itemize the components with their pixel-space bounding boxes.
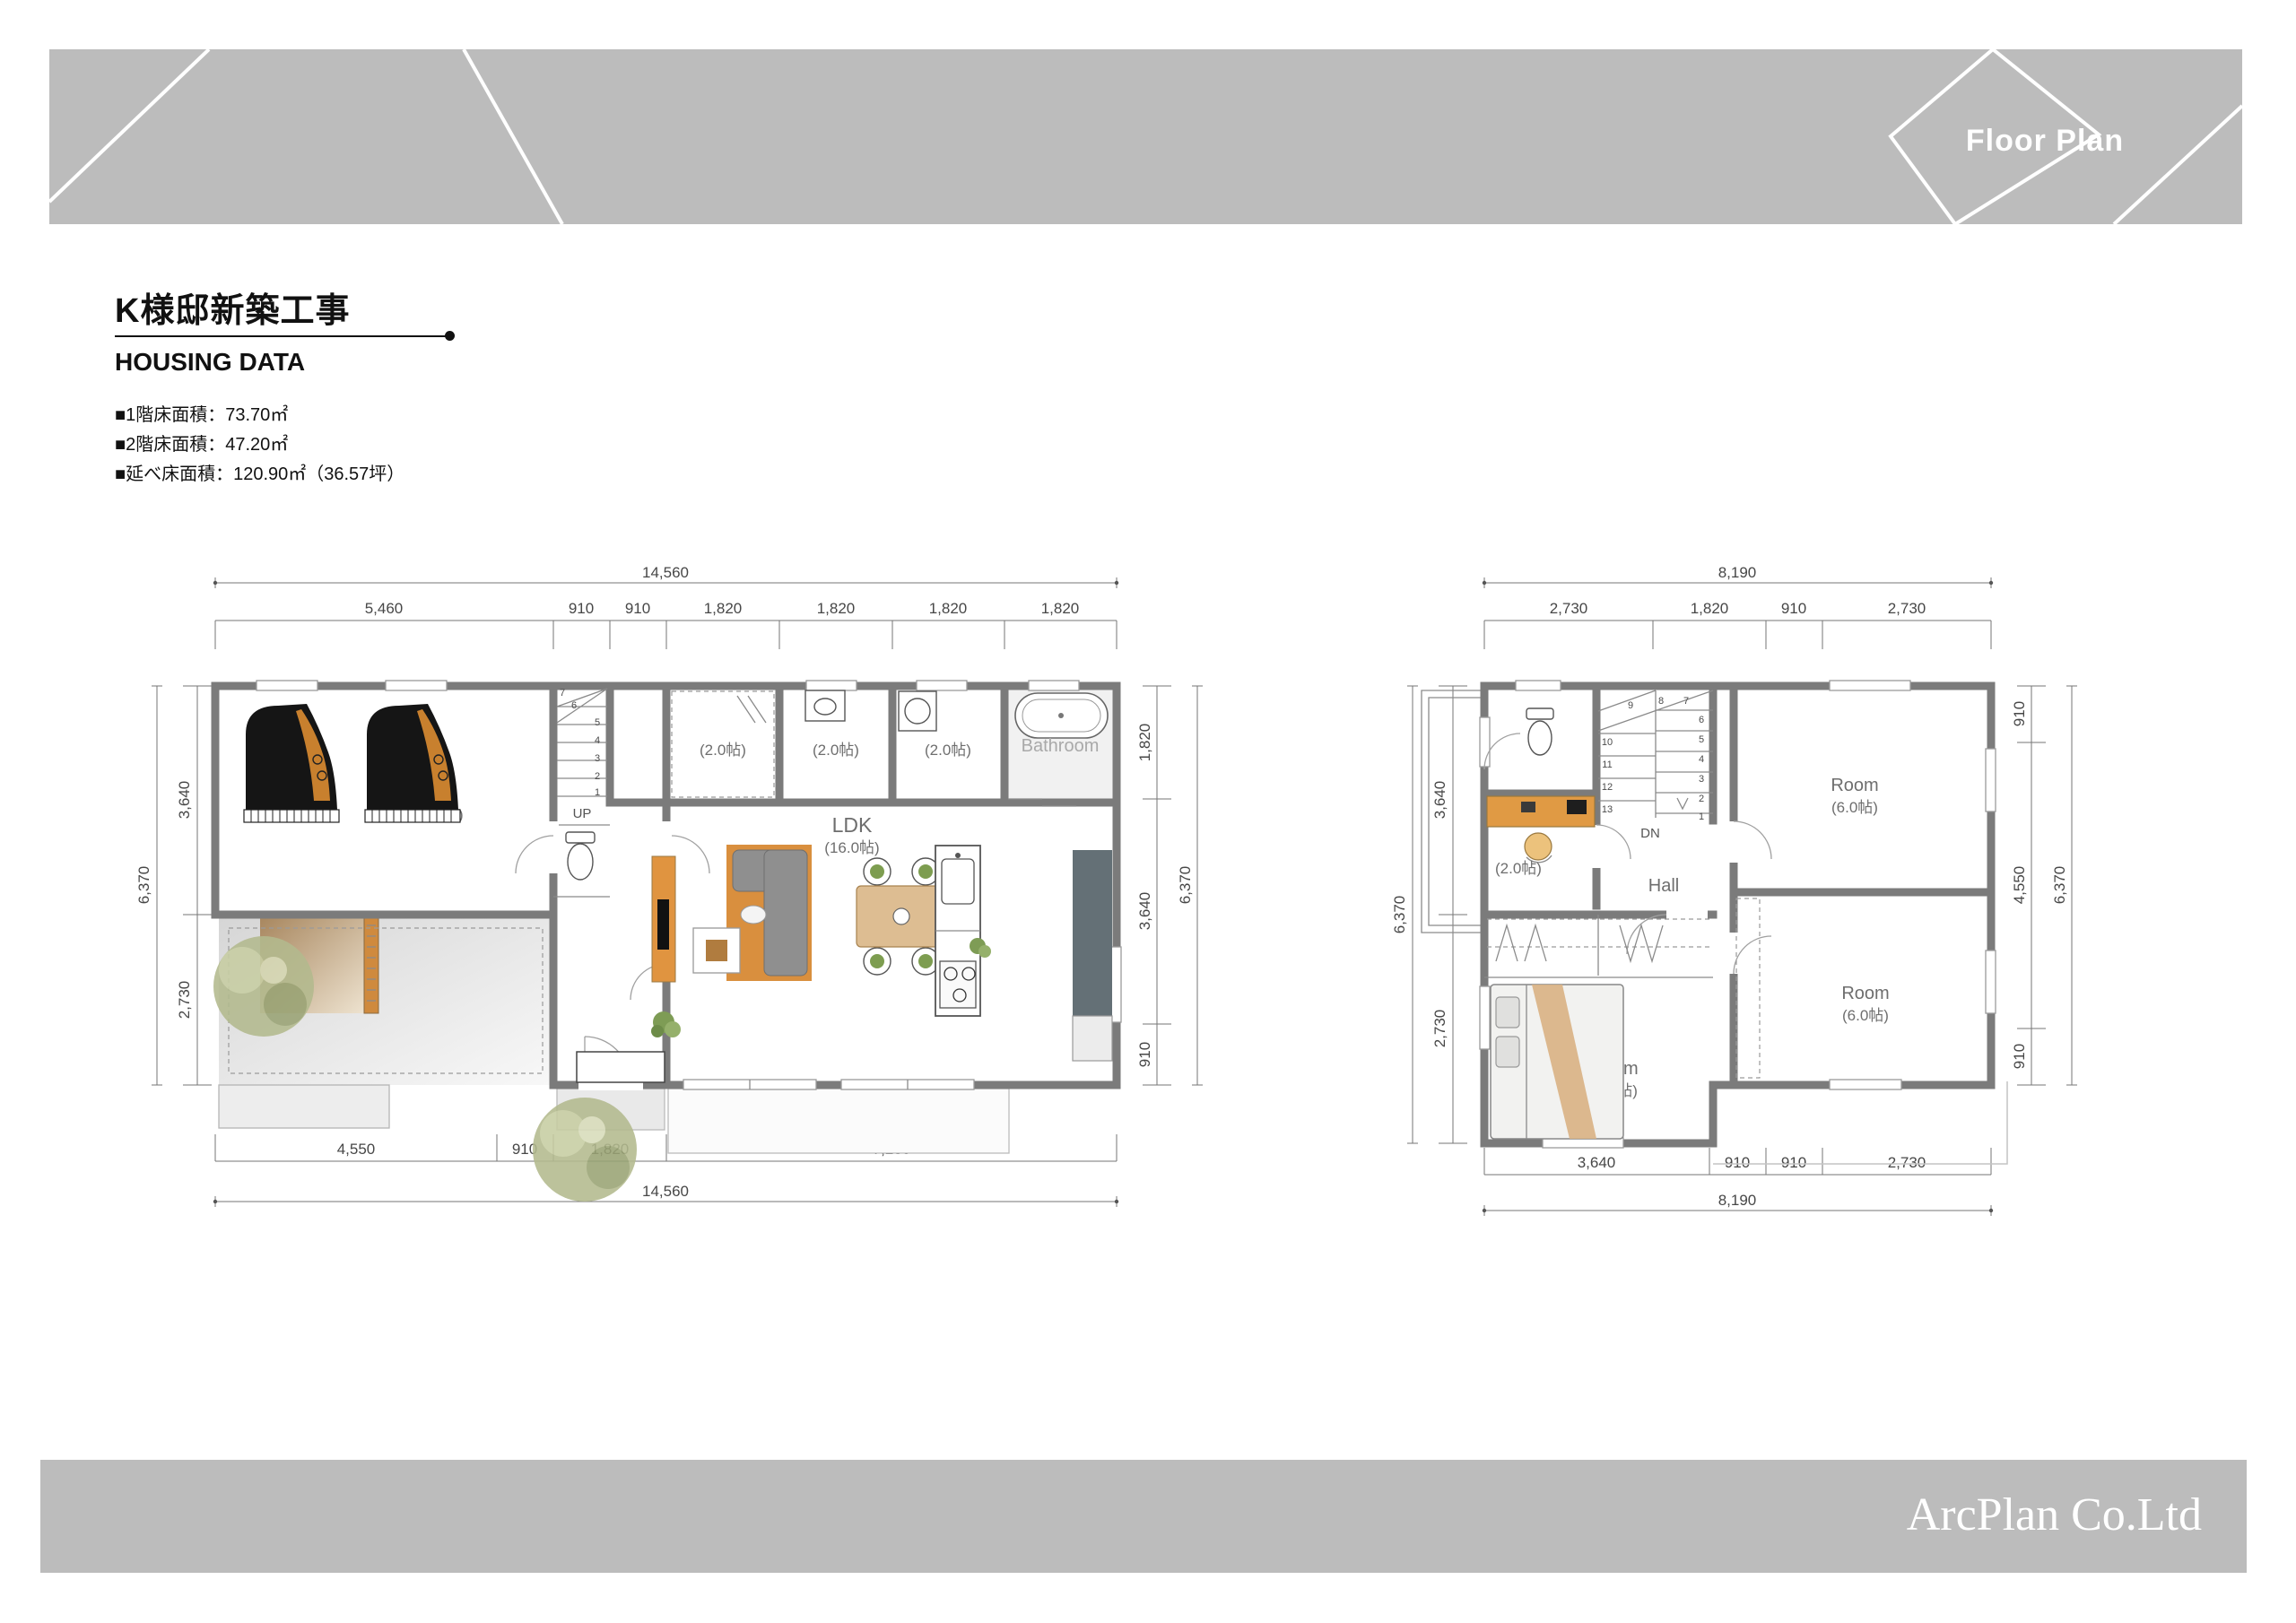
footer-company-name: ArcPlan Co.Ltd [1704, 1488, 2202, 1541]
floor1-dims-top: 14,560 5,460 910 910 1,820 1,820 1,820 1… [213, 564, 1118, 649]
housing-data-list: ■1階床面積：73.70㎡ ■2階床面積：47.20㎡ ■延べ床面積：120.9… [115, 400, 404, 489]
floor2-room-se-closet [1736, 898, 1760, 1078]
section-title: HOUSING DATA [115, 348, 305, 377]
floor2-dims-right: 910 4,550 910 6,370 [2011, 686, 2077, 1085]
svg-text:10: 10 [1602, 737, 1613, 748]
svg-text:5: 5 [1699, 734, 1704, 745]
svg-text:910: 910 [1136, 1042, 1153, 1067]
kitchen-cabinet [1073, 1016, 1112, 1061]
floor1-dims-left: 6,370 3,640 2,730 [135, 686, 212, 1085]
floor1-toilet-icon [566, 832, 595, 880]
svg-text:9: 9 [1628, 700, 1633, 711]
svg-text:4: 4 [595, 735, 600, 746]
svg-text:4: 4 [1699, 754, 1704, 765]
floor2-stairs: 1 2 3 4 5 6 7 8 9 10 11 12 13 DN [1598, 690, 1713, 841]
svg-text:910: 910 [1725, 1154, 1750, 1171]
spec-floor2-area: ■2階床面積：47.20㎡ [115, 430, 404, 459]
spec-total-area: ■延べ床面積：120.90㎡（36.57坪） [115, 459, 404, 489]
svg-text:14,560: 14,560 [642, 1183, 689, 1200]
header-decoration [49, 49, 2242, 224]
svg-text:1: 1 [595, 787, 600, 798]
plant-icon [651, 1011, 681, 1037]
floor1-partitions [553, 799, 1076, 897]
svg-text:7: 7 [1683, 696, 1689, 707]
svg-text:2,730: 2,730 [1888, 1154, 1926, 1171]
grand-piano-icon [365, 704, 460, 822]
floor2-plan: 8,190 2,730 1,820 910 2,730 6,370 3,640 … [1300, 556, 2152, 1264]
svg-text:DN: DN [1640, 826, 1660, 841]
svg-text:5: 5 [595, 717, 600, 728]
svg-text:1,820: 1,820 [1041, 600, 1080, 617]
svg-text:1: 1 [1699, 811, 1704, 822]
svg-text:3,640: 3,640 [1431, 781, 1448, 820]
svg-text:3,640: 3,640 [176, 781, 193, 820]
svg-text:2,730: 2,730 [176, 981, 193, 1020]
svg-text:8,190: 8,190 [1718, 564, 1757, 581]
svg-text:1,820: 1,820 [1136, 724, 1153, 762]
floor1-dims-right: 1,820 3,640 910 6,370 [1136, 686, 1203, 1085]
svg-text:2: 2 [595, 771, 600, 782]
floor1-ldk-label: LDK [832, 813, 873, 837]
floor2-toilet-icon [1526, 708, 1553, 755]
floor2-room-ne-size: (6.0帖) [1831, 799, 1878, 816]
title-underline-dot [445, 331, 455, 341]
tree-symbol [533, 1098, 637, 1202]
svg-text:UP: UP [573, 806, 592, 821]
svg-text:12: 12 [1602, 782, 1613, 793]
svg-text:13: 13 [1602, 804, 1613, 815]
svg-text:8: 8 [1658, 696, 1664, 707]
floor1-washing-machine-icon [899, 691, 936, 731]
spec-floor1-area: ■1階床面積：73.70㎡ [115, 400, 404, 430]
svg-text:6,370: 6,370 [1391, 896, 1408, 934]
floor2-room-se-label: Room [1841, 984, 1889, 1003]
svg-text:910: 910 [2011, 701, 2028, 726]
svg-text:14,560: 14,560 [642, 564, 689, 581]
svg-text:11: 11 [1602, 759, 1612, 770]
svg-text:910: 910 [1781, 1154, 1806, 1171]
desk-icon [1487, 796, 1595, 863]
svg-text:910: 910 [569, 600, 594, 617]
floor1-washroom-label: (2.0帖) [813, 742, 859, 759]
svg-text:4,550: 4,550 [337, 1141, 376, 1158]
floor1-bathtub-icon [1015, 693, 1108, 738]
svg-text:3,640: 3,640 [1578, 1154, 1616, 1171]
floor2-dims-top: 8,190 2,730 1,820 910 2,730 [1483, 564, 1993, 649]
floor2-hall-label: Hall [1648, 876, 1679, 896]
svg-text:6,370: 6,370 [135, 866, 152, 905]
floor2-desk-room-label: (2.0帖) [1495, 860, 1542, 877]
svg-text:8,190: 8,190 [1718, 1192, 1757, 1209]
header-banner-title: Floor Plan [1937, 124, 2152, 159]
tree-symbol [213, 936, 314, 1037]
floor1-plan: 14,560 5,460 910 910 1,820 1,820 1,820 1… [90, 556, 1256, 1264]
tv-board-icon [652, 856, 675, 982]
svg-text:1,820: 1,820 [1691, 600, 1729, 617]
svg-text:4,550: 4,550 [2011, 866, 2028, 905]
svg-text:2,730: 2,730 [1431, 1010, 1448, 1048]
floor1-bathroom-label: Bathroom [1022, 736, 1100, 756]
title-underline [115, 335, 448, 337]
project-title: K様邸新築工事 [115, 282, 350, 332]
svg-text:5,460: 5,460 [365, 600, 404, 617]
svg-text:3,640: 3,640 [1136, 892, 1153, 931]
floor2-closet [1484, 915, 1713, 977]
kitchen-counter-icon [935, 846, 980, 1016]
svg-text:1,820: 1,820 [817, 600, 856, 617]
floor1-ldk-size-label: (16.0帖) [824, 839, 879, 856]
svg-text:910: 910 [625, 600, 650, 617]
svg-text:6: 6 [571, 700, 577, 711]
svg-text:2: 2 [1699, 794, 1704, 804]
dining-table-icon [857, 858, 946, 975]
floor2-room-ne-label: Room [1831, 776, 1878, 795]
svg-text:7: 7 [560, 688, 565, 699]
svg-text:6,370: 6,370 [1177, 866, 1194, 905]
svg-text:2,730: 2,730 [1888, 600, 1926, 617]
svg-text:910: 910 [1781, 600, 1806, 617]
floor1-utility-label: (2.0帖) [925, 742, 971, 759]
svg-text:6,370: 6,370 [2051, 866, 2068, 905]
floor1-washbasin-icon [805, 690, 845, 721]
svg-text:1,820: 1,820 [704, 600, 743, 617]
svg-text:6: 6 [1699, 715, 1704, 725]
svg-text:3: 3 [1699, 774, 1704, 785]
floor2-room-se-size: (6.0帖) [1842, 1007, 1889, 1024]
svg-text:3: 3 [595, 753, 600, 764]
header-banner [49, 49, 2242, 224]
svg-text:2,730: 2,730 [1550, 600, 1588, 617]
floor1-entrance-step [577, 1052, 665, 1082]
floor1-stairs: 5 4 3 2 1 6 7 UP [557, 688, 607, 821]
bed-icon [1491, 985, 1623, 1139]
floor2-dims-bottom: 3,640 910 910 2,730 8,190 [1483, 1148, 1993, 1216]
floor1-closet-label: (2.0帖) [700, 742, 746, 759]
floor1-roof-outline [1713, 1081, 2007, 1164]
kitchen-back-counter [1073, 850, 1112, 1016]
coffee-table-icon [693, 928, 740, 973]
grand-piano-icon [244, 704, 339, 822]
svg-text:1,820: 1,820 [929, 600, 968, 617]
svg-text:910: 910 [2011, 1044, 2028, 1069]
